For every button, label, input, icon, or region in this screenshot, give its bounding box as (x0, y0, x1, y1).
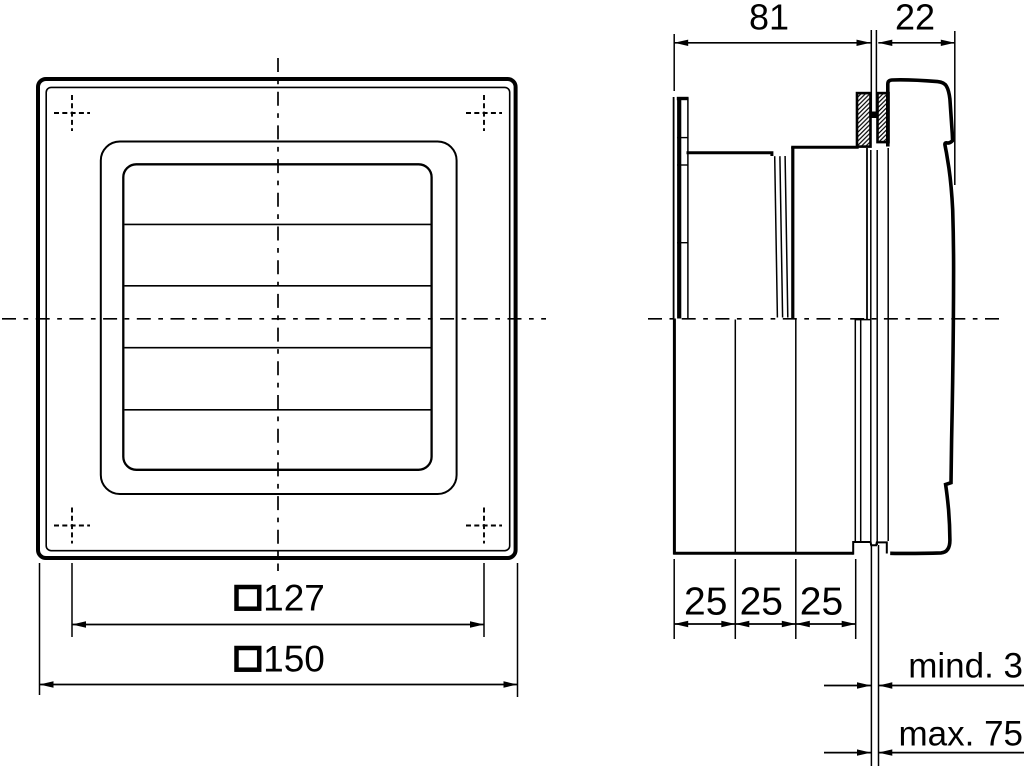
svg-text:81: 81 (749, 0, 789, 38)
svg-text:150: 150 (263, 639, 325, 680)
svg-text:127: 127 (263, 578, 325, 619)
svg-text:25: 25 (800, 580, 843, 623)
svg-text:22: 22 (895, 0, 935, 38)
svg-text:mind. 3: mind. 3 (908, 647, 1023, 686)
svg-text:25: 25 (740, 580, 783, 623)
svg-text:25: 25 (684, 580, 727, 623)
svg-text:max. 75: max. 75 (899, 715, 1024, 754)
